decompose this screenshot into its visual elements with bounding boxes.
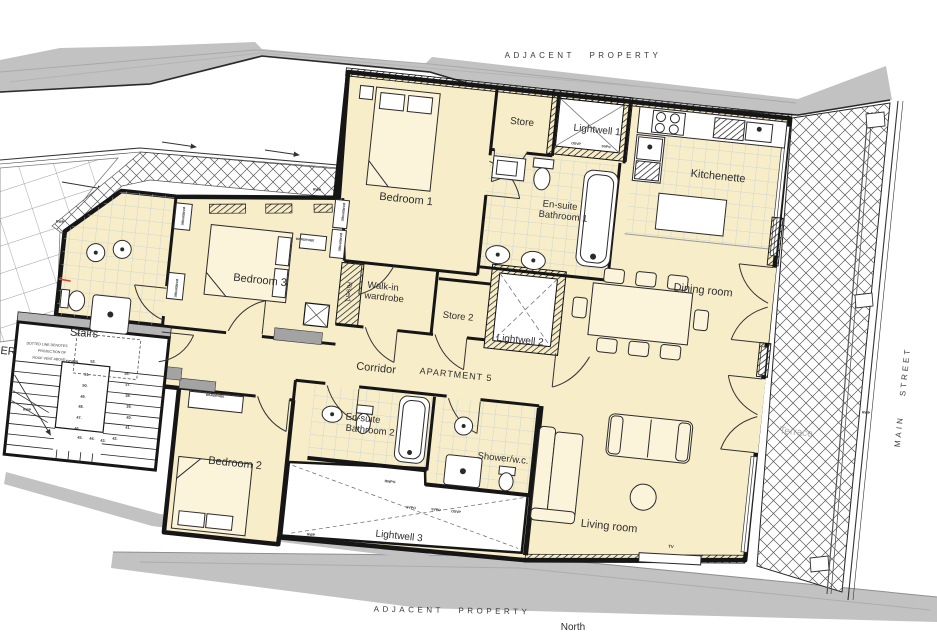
wardrobe-bedroom3 — [174, 203, 193, 231]
wardrobe-bedroom1 — [333, 199, 350, 228]
floor-plan-drawing — [0, 0, 937, 633]
stairs-block — [3, 312, 171, 470]
terrace-drain-box — [866, 112, 885, 128]
kitchen-island — [655, 193, 726, 236]
wardrobe-bedroom3 — [166, 272, 185, 300]
wardrobe-bedroom3 — [299, 234, 326, 251]
corridor-vent-box — [303, 303, 329, 327]
bed-bedroom2 — [171, 456, 252, 535]
sofa-main — [605, 413, 693, 464]
terrace-drain-box — [855, 293, 873, 308]
sofa-l-shaped — [530, 426, 584, 524]
lightwell-2 — [484, 264, 566, 355]
wardrobe-bedroom1 — [330, 229, 347, 258]
floorplan-page: ADJACENT PROPERTY ADJACENT PROPERTY MAIN… — [0, 0, 937, 633]
terrace-drain-box — [810, 556, 829, 572]
bed-bedroom3 — [204, 225, 293, 303]
